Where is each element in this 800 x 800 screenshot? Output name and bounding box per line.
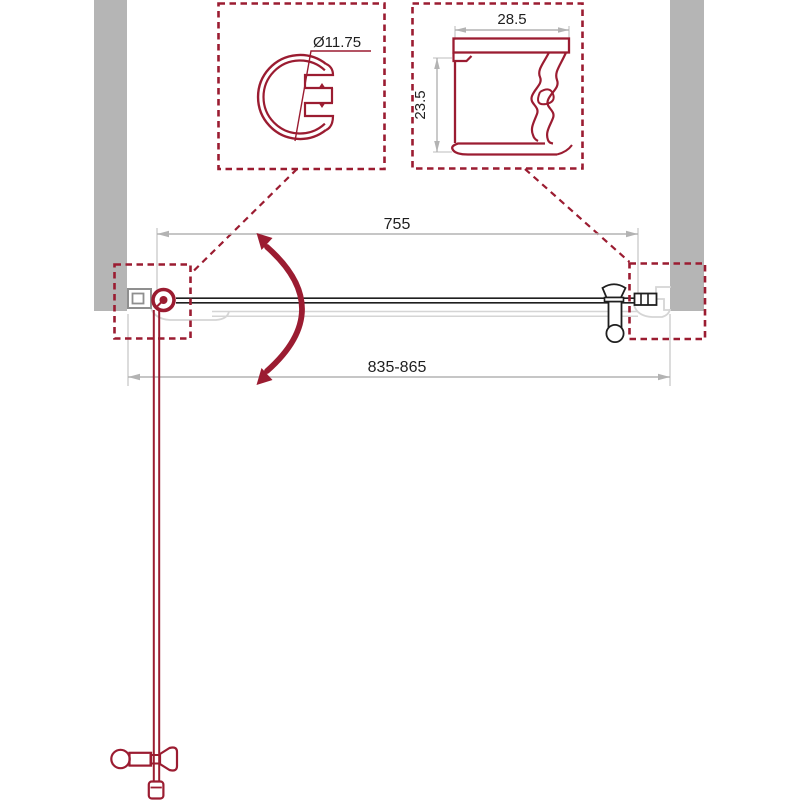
shower-door-technical-drawing: Ø11.75 28.5 23.5 755 (0, 0, 800, 800)
handle-inner-knob (606, 325, 623, 342)
door-handle-plan (603, 284, 626, 342)
hinge-assembly (128, 289, 151, 308)
profile-clamp-outer (547, 53, 566, 144)
profile-bottom-tail (557, 145, 572, 155)
dim-755-arrow-right (626, 231, 638, 237)
detail-wall-profile: 28.5 23.5 (412, 4, 583, 169)
door-swing-arc (257, 233, 303, 385)
glass-door-closed (150, 287, 671, 320)
handle-collar (605, 298, 624, 302)
wall-bracket-slot (133, 294, 144, 304)
profile-bottom-bar (452, 144, 557, 155)
dim-235-arrow-top (434, 58, 440, 69)
wall-profile-plan-outline (656, 287, 671, 310)
handle-outer-knob (603, 284, 626, 297)
handle-stem (609, 302, 622, 328)
swing-arc-curve (267, 247, 302, 371)
door-edge-plug (635, 294, 657, 306)
open-handle-knob-right (160, 748, 177, 771)
detail-knob-profile: Ø11.75 (219, 4, 385, 170)
dim-835-arrow-right (658, 374, 670, 380)
left-wall (94, 0, 127, 311)
open-handle-bar (130, 753, 152, 766)
profile-left-lip (454, 53, 472, 62)
wall-profile-width-label: 28.5 (497, 11, 526, 28)
dim-235-arrow-bottom (434, 141, 440, 152)
glass-door-open (111, 310, 177, 799)
profile-bottom-finger (305, 103, 333, 130)
profile-top-bar (454, 39, 570, 53)
dim-755-arrow-left (157, 231, 169, 237)
opening-width-label: 835-865 (368, 359, 427, 376)
dimension-755: 755 (157, 216, 638, 296)
knob-diameter-label: Ø11.75 (313, 34, 361, 51)
hinge-pivot (153, 290, 174, 311)
drawing-svg: Ø11.75 28.5 23.5 755 (0, 0, 800, 800)
dim-285-arrow-right (558, 27, 569, 33)
profile-clamp-hook (538, 89, 554, 104)
dim-835-arrow-left (128, 374, 140, 380)
dimension-835-865: 835-865 (128, 314, 670, 386)
open-door-foot (149, 782, 164, 799)
wall-profile-depth-label: 23.5 (412, 90, 429, 119)
leader-wall-profile-detail (525, 169, 630, 262)
detail-box-knob (219, 4, 385, 170)
profile-outer-arc (258, 55, 326, 139)
open-handle-knob-left (111, 750, 129, 768)
profile-top-finger (305, 64, 333, 88)
dim-285-arrow-left (455, 27, 466, 33)
profile-inner-arc (264, 61, 325, 134)
glass-width-label: 755 (384, 216, 411, 233)
profile-clamp-inner (531, 53, 549, 142)
